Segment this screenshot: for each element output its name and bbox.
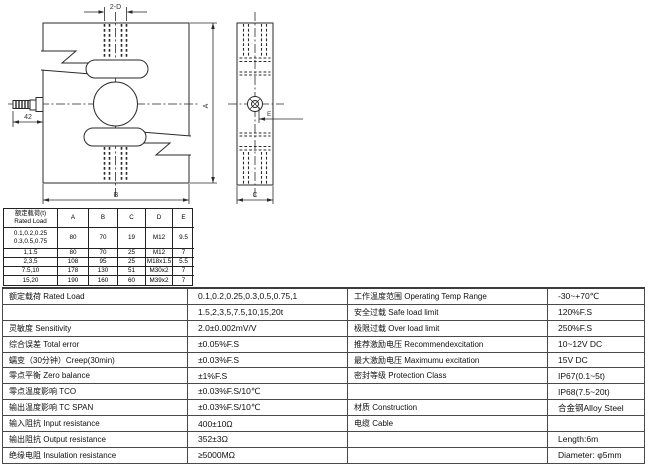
lower-slot [84,128,146,146]
dim-load-cell: 15,20 [4,276,58,285]
dim-e-label: E [267,111,272,118]
dim-value: 80 [58,228,89,249]
spec-value: Length:6m [547,432,645,448]
spec-value: ±0.03%F.S [187,353,347,369]
dim-value: 19 [118,228,146,249]
spec-label: 综合误差 Total error [2,337,187,353]
spec-label: 密封等级 Protection Class [347,368,547,384]
dim-value: M39x2 [146,276,173,285]
dim-load-cell: 2,3,5 [4,258,58,267]
dim-value: 70 [89,249,118,258]
dim-value: 95 [89,258,118,267]
dim-value: 60 [118,276,146,285]
spec-label: 额定载荷 Rated Load [2,289,187,305]
spec-value: ±1%F.S [187,368,347,384]
spec-value: 352±3Ω [187,432,347,448]
spec-label: 极限过载 Over load limit [347,321,547,337]
spec-value: ±0.03%F.S/10℃ [187,400,347,416]
dim-value: 9.5 [173,228,194,249]
spec-label [347,448,547,464]
spec-label: 输出温度影响 TC SPAN [2,400,187,416]
dim-header-col: B [89,209,118,228]
spec-label [347,432,547,448]
dim-b-label: B [114,192,119,199]
dim-value: 5.5 [173,258,194,267]
spec-value: ±0.03%F.S/10℃ [187,384,347,400]
dim-value: 7 [173,276,194,285]
dim-value: 130 [89,267,118,276]
spec-label [2,305,187,321]
dim-value: 190 [58,276,89,285]
spec-label: 最大激励电压 Maximumu excitation [347,353,547,369]
dim-header-col: A [58,209,89,228]
dim-header-load-en: Rated Load [14,218,47,226]
dim-value: 178 [58,267,89,276]
spec-label: 推荐激励电压 Recommendexcitation [347,337,547,353]
dim-value: M30x2 [146,267,173,276]
spec-value: -30~+70℃ [547,289,645,305]
spec-label [347,384,547,400]
dim-load-line2: 0.3,0.5,0.75 [14,238,47,246]
dim-value: 160 [89,276,118,285]
spec-value: 10~12V DC [547,337,645,353]
dim-value: 80 [58,249,89,258]
dimension-table: 额定载荷(t) Rated Load A B C D E 0.1,0.2,0.2… [3,208,193,286]
spec-label: 工作温度范围 Operating Temp Range [347,289,547,305]
spec-value: ±0.05%F.S [187,337,347,353]
dim-load-cell: 1,1.5 [4,249,58,258]
spec-value: 120%F.S [547,305,645,321]
dim-load-line1: 0.1,0.2,0.25 [14,230,47,238]
spec-value: 15V DC [547,353,645,369]
dim-header-col: E [173,209,194,228]
spec-label: 安全过载 Safe load limit [347,305,547,321]
dim-value: 25 [118,249,146,258]
spec-label: 蠕变（30分钟）Creep(30min) [2,353,187,369]
spec-label: 材质 Construction [347,400,547,416]
spec-label: 电缆 Cable [347,416,547,432]
dim-value: 51 [118,267,146,276]
spec-label: 输入阻抗 Input resistance [2,416,187,432]
spec-label: 输出阻抗 Output resistance [2,432,187,448]
spec-value: IP68(7.5~20t) [547,384,645,400]
upper-slot [86,60,148,78]
side-view: E C [228,12,303,204]
dim-header-load-zh: 额定载荷(t) [15,210,46,218]
dim-a-label: A [203,103,210,108]
spec-value: IP67(0.1~5t) [547,368,645,384]
center-hole [94,82,138,126]
dim-2d-label: 2-D [110,4,121,11]
spec-value [547,416,645,432]
front-view: 2-D 42 A B [8,4,217,204]
dim-value: 25 [118,258,146,267]
spec-value: 0.1,0.2,0.25,0.3,0.5,0.75,1 [187,289,347,305]
dim-load-cell: 0.1,0.2,0.25 0.3,0.5,0.75 [4,228,58,249]
dim-value: M12 [146,228,173,249]
dim-header-col: D [146,209,173,228]
spec-value: 250%F.S [547,321,645,337]
spec-value: 2.0±0.002mV/V [187,321,347,337]
spec-label: 零点温度影响 TCO [2,384,187,400]
spec-value: 1.5,2,3,5,7.5,10,15,20t [187,305,347,321]
spec-value: 合金钢Alloy Steel [547,400,645,416]
cable-connector [13,98,43,112]
spec-label: 灵敏度 Sensitivity [2,321,187,337]
dim-load-cell: 7.5,10 [4,267,58,276]
dim-value: M12 [146,249,173,258]
technical-drawing: 2-D 42 A B [0,0,340,207]
dim-value: 108 [58,258,89,267]
spec-label: 零点平衡 Zero balance [2,368,187,384]
dim-value: 7 [173,267,194,276]
dim-header-col: C [118,209,146,228]
spec-table: 额定载荷 Rated Load 0.1,0.2,0.25,0.3,0.5,0.7… [2,287,645,464]
cable-gland [248,97,263,112]
dim-header-load: 额定载荷(t) Rated Load [4,209,58,228]
dim-42-label: 42 [24,114,32,121]
dim-value: M18x1.5 [146,258,173,267]
dim-value: 7 [173,249,194,258]
spec-label: 绝缘电阻 Insulation resistance [2,448,187,464]
dim-value: 70 [89,228,118,249]
spec-value: Diameter: φ5mm [547,448,645,464]
dim-a [190,23,217,183]
spec-value: ≥5000MΩ [187,448,347,464]
dim-c-label: C [252,192,257,199]
spec-value: 400±10Ω [187,416,347,432]
